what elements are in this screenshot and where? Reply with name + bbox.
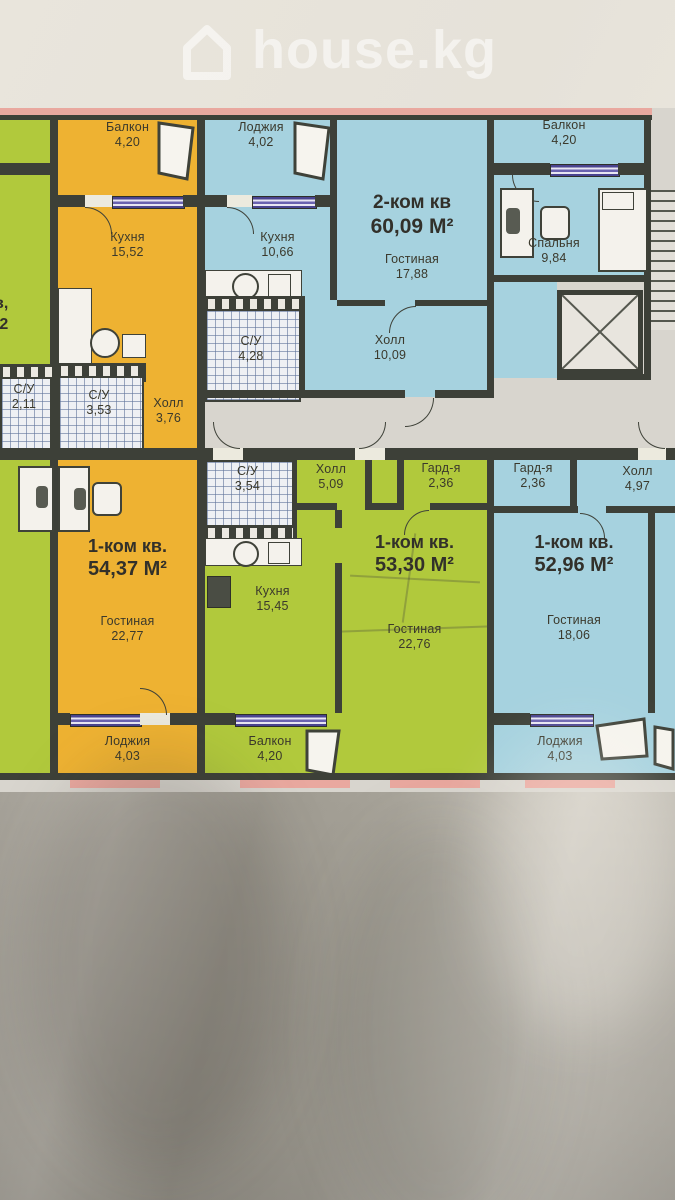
wall-left-balcony bbox=[0, 163, 50, 175]
wall-under-elevator bbox=[557, 374, 651, 380]
wall-right-balcony bbox=[494, 163, 550, 175]
wall-loggia-blue bbox=[494, 713, 530, 725]
window-green-balcony bbox=[235, 714, 327, 727]
wall-v bbox=[570, 460, 577, 506]
wall-blue-loggia bbox=[205, 195, 227, 207]
door-gap bbox=[85, 195, 112, 207]
label-kitchen-green: Кухня 15,45 bbox=[210, 584, 335, 615]
label-living-orange54: Гостиная 22,77 bbox=[58, 614, 197, 645]
label-wc-blue60: С/У 4,28 bbox=[205, 334, 297, 365]
wall-corridor bbox=[243, 448, 355, 460]
entry-door-gap bbox=[355, 448, 385, 460]
blue-hall-strip bbox=[494, 282, 557, 378]
wall-hall-top bbox=[415, 300, 487, 306]
exterior-strip bbox=[390, 780, 480, 788]
label-kitchen-blue60: Кухня 10,66 bbox=[225, 230, 330, 261]
stove-icon bbox=[268, 542, 290, 564]
wall-segment bbox=[618, 163, 644, 175]
wall-v bbox=[335, 563, 342, 713]
label-hall-blue52: Холл 4,97 bbox=[600, 464, 675, 495]
watermark-brand: house.kg bbox=[252, 19, 497, 81]
label-living-green53: Гостиная 22,76 bbox=[342, 622, 487, 653]
window-orange-loggia bbox=[70, 714, 142, 727]
window-blue-loggia bbox=[252, 196, 317, 209]
wall-v bbox=[197, 460, 205, 780]
entry-door-gap bbox=[213, 448, 243, 460]
elevator-icon bbox=[557, 290, 643, 374]
wall-v bbox=[335, 510, 342, 528]
wall-orange-balcony bbox=[58, 195, 85, 207]
window-icon bbox=[653, 724, 675, 772]
door-gap bbox=[227, 195, 252, 207]
stairs-icon bbox=[651, 190, 675, 330]
wall-hall-top bbox=[337, 300, 385, 306]
chair-icon bbox=[92, 482, 122, 516]
stove-icon bbox=[122, 334, 146, 358]
label-wardrobe-blue52: Гард-я 2,36 bbox=[496, 461, 570, 492]
label-kitchen-orange: Кухня 15,52 bbox=[58, 230, 197, 261]
label-unit-blue52: 1-ком кв. 52,96 М² bbox=[494, 532, 654, 578]
chair-icon bbox=[36, 486, 48, 508]
door-arc bbox=[405, 398, 434, 427]
chair-icon bbox=[506, 208, 520, 234]
label-balcony-green53: Балкон 4,20 bbox=[205, 734, 335, 765]
label-unit-green53: 1-ком кв. 53,30 М² bbox=[342, 532, 487, 578]
wall-v bbox=[487, 115, 494, 397]
label-hall-orange: Холл 3,76 bbox=[140, 396, 197, 427]
wall-loggia bbox=[58, 713, 70, 725]
label-living-blue60: Гостиная 17,88 bbox=[337, 252, 487, 283]
entry-door-gap bbox=[638, 448, 666, 460]
wall-h bbox=[430, 503, 487, 510]
label-wc-green: С/У 3,54 bbox=[205, 464, 290, 495]
label-bedroom-blue60: Спальня 9,84 bbox=[494, 236, 614, 267]
floor-plan: Балкон 4,20 Лоджия 4,02 Балкон 4,20 кв, … bbox=[0, 108, 675, 792]
light-blob bbox=[480, 732, 675, 1032]
chair-icon bbox=[74, 488, 86, 510]
wall-segment bbox=[183, 195, 197, 207]
label-unit-blue60: 2-ком кв 60,09 М² bbox=[337, 192, 487, 240]
house-kg-watermark: house.kg bbox=[0, 4, 675, 96]
entry-door-arc bbox=[638, 422, 665, 449]
wall-corridor bbox=[385, 448, 638, 460]
label-balcony-blue60: Балкон 4,20 bbox=[494, 118, 634, 149]
wall-loggia bbox=[170, 713, 197, 725]
wall-bedroom-bottom bbox=[494, 275, 644, 282]
wall-balcony-green bbox=[205, 713, 235, 725]
entry-door-arc bbox=[213, 422, 240, 449]
label-balcony-orange: Балкон 4,20 bbox=[58, 120, 197, 151]
wall-corridor bbox=[666, 448, 675, 460]
wall-corridor bbox=[0, 448, 213, 460]
wall-h bbox=[297, 503, 337, 510]
label-unit-orange54: 1-ком кв. 54,37 М² bbox=[58, 536, 197, 582]
sink-icon bbox=[233, 541, 259, 567]
label-loggia-blue60: Лоджия 4,02 bbox=[205, 120, 317, 151]
label-wardrobe-green: Гард-я 2,36 bbox=[400, 461, 482, 492]
label-wc-left: С/У 2,11 bbox=[0, 382, 48, 413]
wall-v bbox=[487, 460, 494, 780]
exterior-wall-strip-top bbox=[0, 108, 652, 115]
exterior-strip bbox=[240, 780, 350, 788]
kitchen-counter bbox=[58, 288, 92, 372]
label-left-partial-unit: кв, М2 bbox=[0, 294, 42, 336]
chair-icon bbox=[540, 206, 570, 240]
label-wc-orange: С/У 3,53 bbox=[58, 388, 140, 419]
wall-blue-bottom bbox=[197, 390, 405, 398]
bed-pillow bbox=[602, 192, 634, 210]
entry-door-arc bbox=[359, 422, 386, 449]
listing-photo: house.kg bbox=[0, 0, 675, 1200]
label-hall-blue60: Холл 10,09 bbox=[345, 333, 435, 364]
label-living-blue52: Гостиная 18,06 bbox=[494, 613, 654, 644]
wall-h bbox=[606, 506, 675, 513]
window-orange-balcony bbox=[112, 196, 185, 209]
wall-v bbox=[197, 115, 205, 455]
wall-h bbox=[372, 503, 397, 510]
wall-h bbox=[494, 506, 578, 513]
house-icon bbox=[178, 16, 236, 84]
shadow-blob bbox=[30, 752, 290, 1172]
sink-icon bbox=[90, 328, 120, 358]
photo-shadow-area bbox=[0, 792, 675, 1200]
wall-blue-bottom bbox=[435, 390, 494, 398]
label-hall-green: Холл 5,09 bbox=[297, 462, 365, 493]
window-right-balcony bbox=[550, 164, 620, 177]
stove-icon bbox=[268, 274, 291, 297]
window-blue-loggia-lower bbox=[530, 714, 594, 727]
wall-v bbox=[365, 460, 372, 510]
